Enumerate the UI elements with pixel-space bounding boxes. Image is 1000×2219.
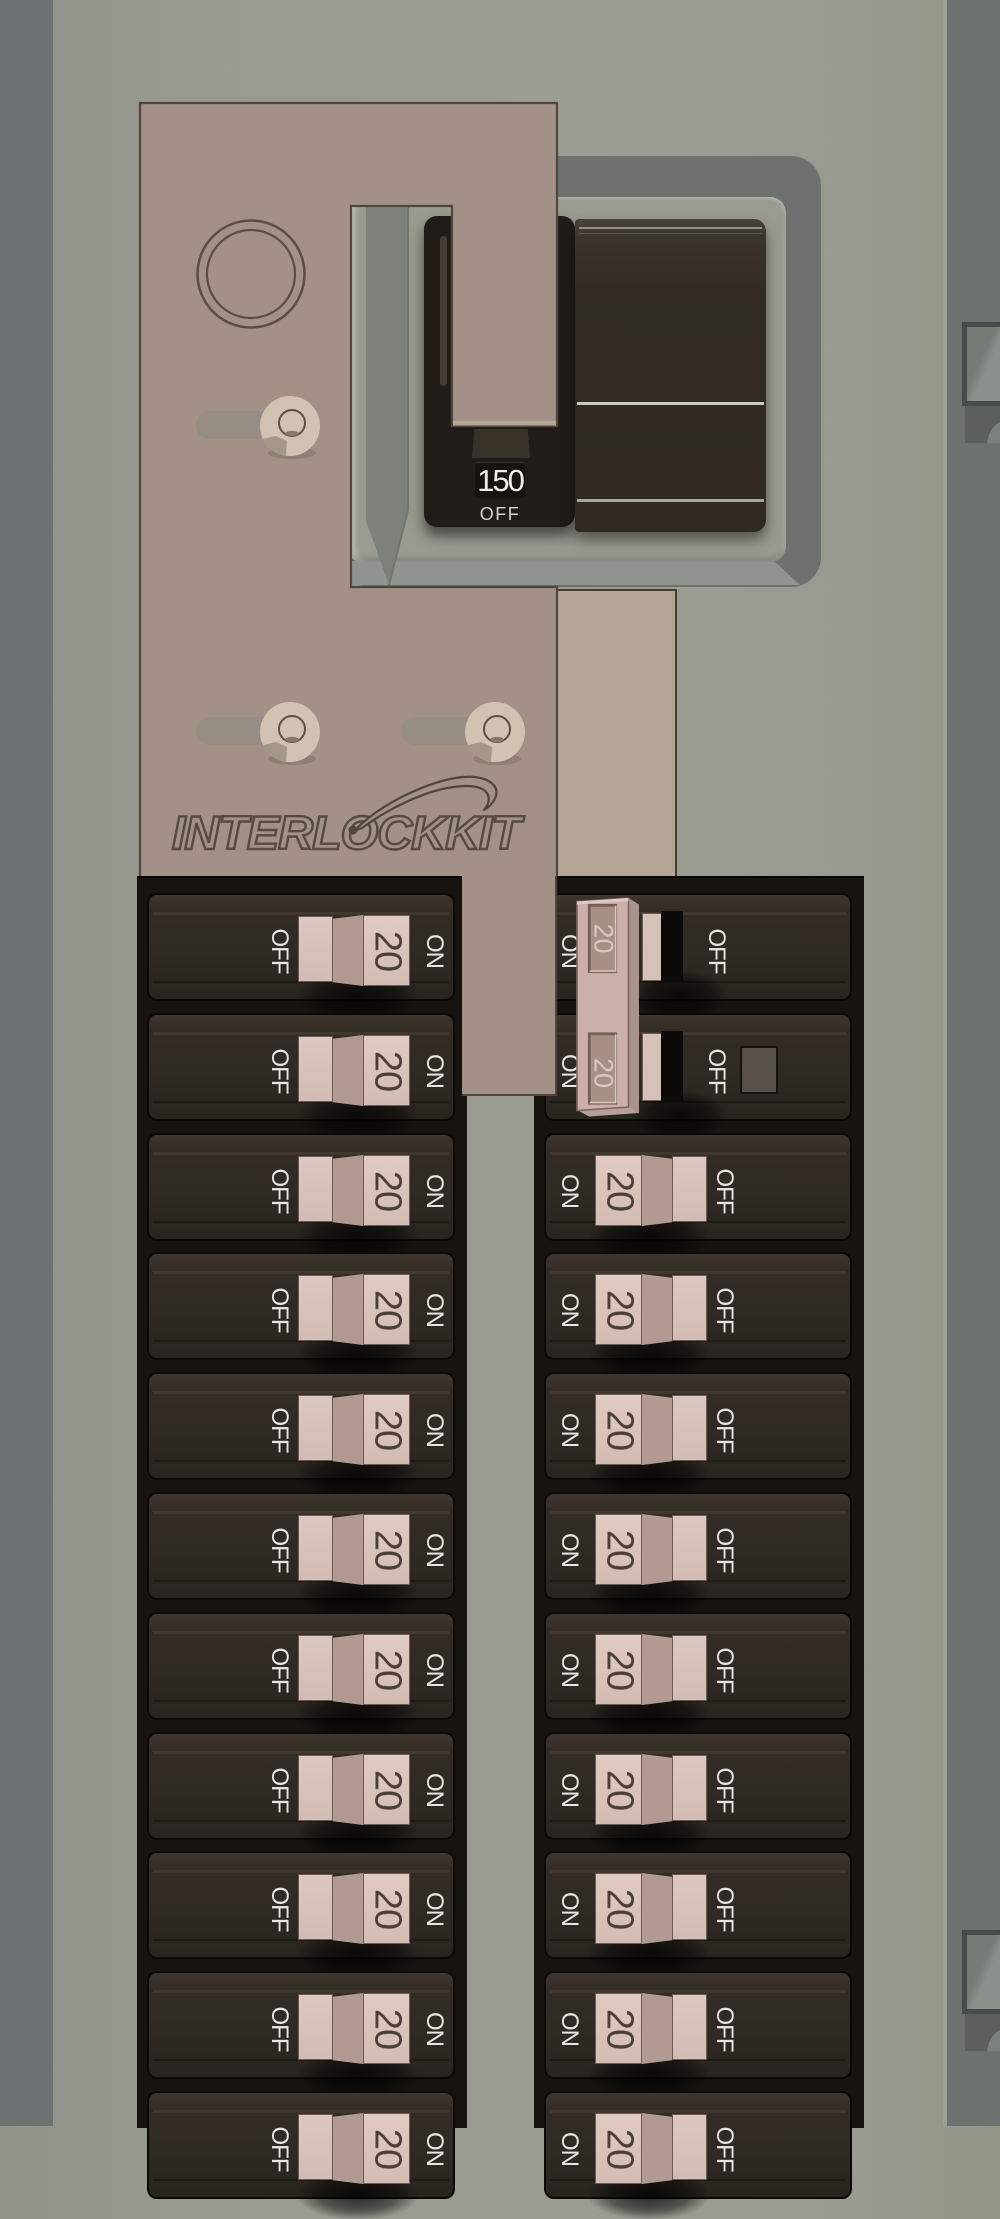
- svg-text:20: 20: [589, 923, 619, 953]
- svg-text:20: 20: [589, 1058, 619, 1088]
- svg-text:INTERLOCKKIT: INTERLOCKKIT: [172, 807, 525, 860]
